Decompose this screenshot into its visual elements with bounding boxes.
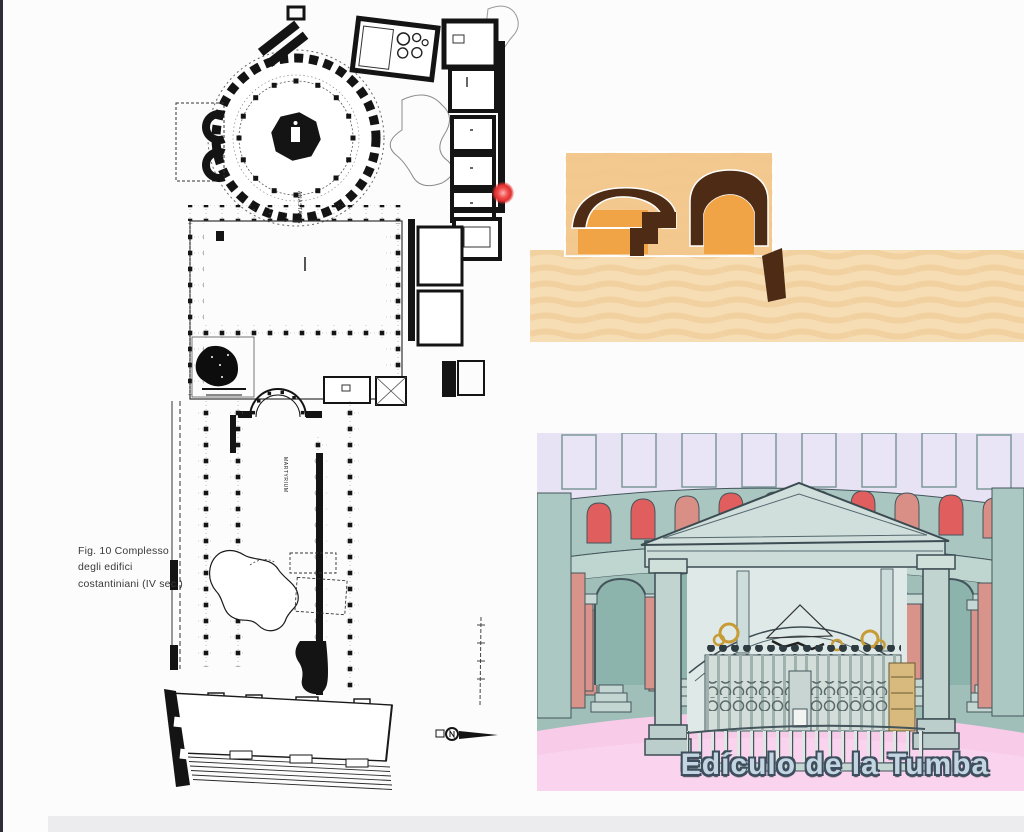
scale-bar xyxy=(477,617,485,705)
slide: ANASTASIS xyxy=(0,0,1024,832)
architectural-plan-figure: ANASTASIS xyxy=(150,5,530,795)
bottom-strip xyxy=(48,816,1024,832)
rotunda-plan: ANASTASIS xyxy=(176,7,384,226)
north-arrow-icon xyxy=(436,728,498,740)
plan-caption-line2: degli edifici xyxy=(78,559,248,575)
atrium-plan xyxy=(164,689,392,795)
plan-caption: Fig. 10 Complesso degli edifici costanti… xyxy=(78,543,248,592)
plan-caption-line3: costantiniani (IV sec.) xyxy=(78,576,248,592)
laser-pointer-dot xyxy=(492,182,514,204)
basilica-label: MARTYRIUM xyxy=(282,457,288,493)
left-edge-line xyxy=(0,0,3,832)
rotunda-illustration xyxy=(537,433,1024,791)
tomb-section-figure xyxy=(530,150,1024,342)
plan-caption-line1: Fig. 10 Complesso xyxy=(78,543,248,559)
rotunda-caption: Edículo de la Tumba xyxy=(650,748,1020,782)
apse-plan xyxy=(238,377,406,418)
